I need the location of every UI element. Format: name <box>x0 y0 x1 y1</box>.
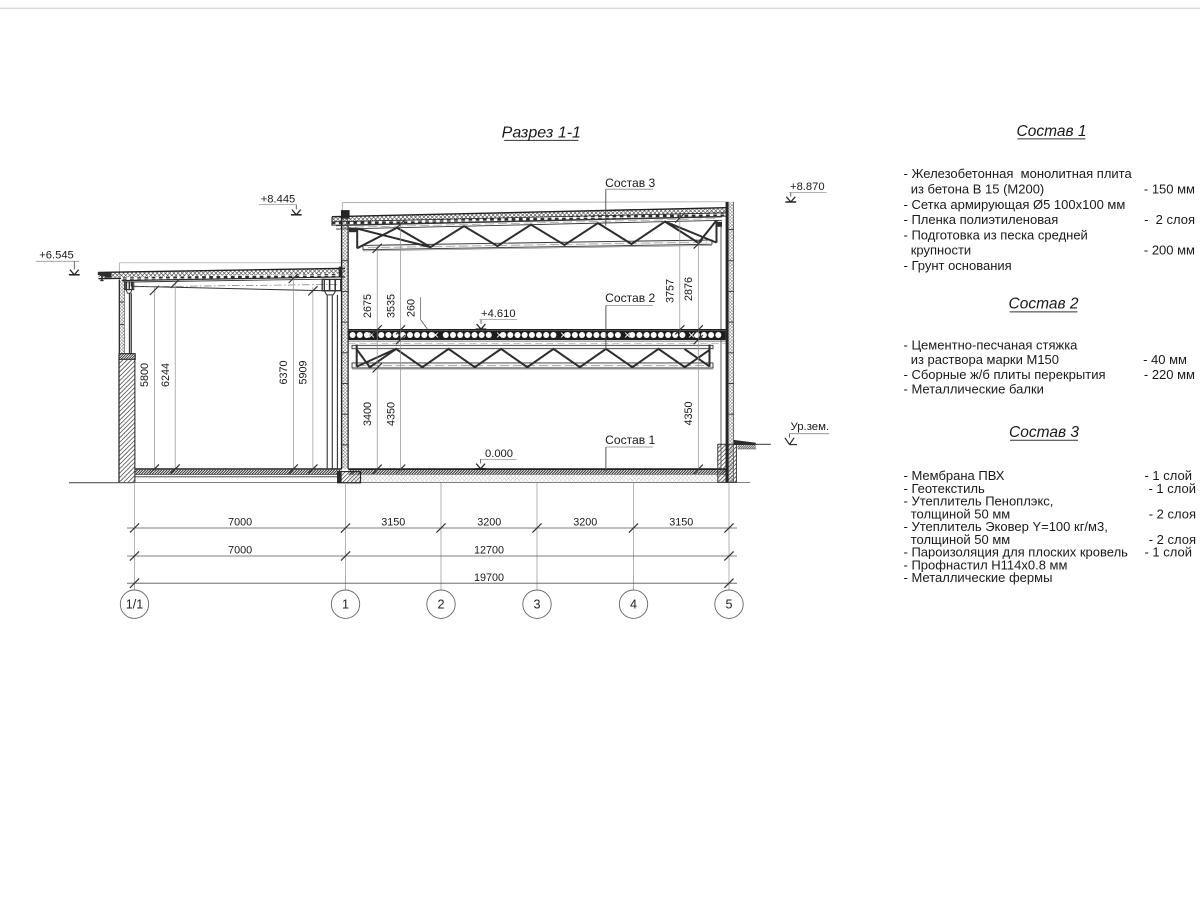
svg-text:4: 4 <box>630 597 637 611</box>
svg-text:3: 3 <box>533 597 540 611</box>
svg-text:6244: 6244 <box>160 363 172 387</box>
svg-text:6370: 6370 <box>278 360 290 384</box>
svg-text:- 200 мм: - 200 мм <box>1144 243 1195 258</box>
svg-text:- Металлические балки: - Металлические балки <box>904 381 1044 396</box>
svg-text:- 40 мм: - 40 мм <box>1143 352 1187 367</box>
svg-text:Состав 3: Состав 3 <box>605 176 655 190</box>
svg-text:260: 260 <box>405 299 417 317</box>
svg-text:3535: 3535 <box>385 294 397 318</box>
svg-text:4350: 4350 <box>385 402 397 426</box>
svg-text:5800: 5800 <box>139 363 151 387</box>
svg-text:+8.445: +8.445 <box>261 194 296 206</box>
svg-text:19700: 19700 <box>474 572 504 584</box>
svg-text:7000: 7000 <box>228 517 252 529</box>
svg-text:Состав 3: Состав 3 <box>1009 424 1079 441</box>
svg-text:из раствора марки М150: из раствора марки М150 <box>904 352 1060 367</box>
svg-text:- 150 мм: - 150 мм <box>1144 182 1195 197</box>
svg-text:- Цементно-песчаная стяжка: - Цементно-песчаная стяжка <box>904 338 1079 353</box>
svg-text:1/1: 1/1 <box>126 597 144 611</box>
svg-text:3757: 3757 <box>665 279 677 303</box>
svg-text:3150: 3150 <box>669 517 693 529</box>
svg-text:- 2 слоя: - 2 слоя <box>1144 212 1195 227</box>
svg-text:3150: 3150 <box>381 517 405 529</box>
svg-text:2675: 2675 <box>362 294 374 318</box>
svg-text:- 1 слой: - 1 слой <box>1144 545 1192 560</box>
svg-text:7000: 7000 <box>228 545 252 557</box>
svg-text:2: 2 <box>437 597 444 611</box>
svg-text:0.000: 0.000 <box>485 448 513 460</box>
svg-text:+8.870: +8.870 <box>790 181 825 193</box>
svg-text:12700: 12700 <box>474 545 504 557</box>
svg-text:3200: 3200 <box>573 517 597 529</box>
svg-text:- Грунт основания: - Грунт основания <box>904 258 1012 273</box>
svg-text:1: 1 <box>342 597 349 611</box>
svg-text:- 2 слоя: - 2 слоя <box>1149 506 1196 521</box>
svg-text:3200: 3200 <box>477 517 501 529</box>
svg-text:Ур.зем.: Ур.зем. <box>790 421 829 433</box>
svg-text:- Сборные ж/б плиты перекрытия: - Сборные ж/б плиты перекрытия <box>904 367 1106 382</box>
svg-text:- Пленка полиэтиленовая: - Пленка полиэтиленовая <box>904 212 1059 227</box>
svg-text:Разрез 1-1: Разрез 1-1 <box>502 125 581 142</box>
svg-text:Состав 1: Состав 1 <box>605 433 655 447</box>
svg-text:+6.545: +6.545 <box>39 249 74 261</box>
svg-text:4350: 4350 <box>683 401 695 425</box>
svg-text:+4.610: +4.610 <box>481 308 516 320</box>
svg-text:- Подготовка из песка средней: - Подготовка из песка средней <box>904 227 1088 242</box>
svg-text:5909: 5909 <box>298 360 310 384</box>
svg-text:- Металлические фермы: - Металлические фермы <box>904 570 1053 585</box>
svg-text:- Железобетонная монолитная п: - Железобетонная монолитная плита <box>904 166 1133 181</box>
svg-text:2876: 2876 <box>683 277 695 301</box>
svg-text:крупности: крупности <box>904 243 972 258</box>
svg-text:из бетона В 15 (М200): из бетона В 15 (М200) <box>904 182 1045 197</box>
svg-text:Состав 2: Состав 2 <box>1009 296 1079 313</box>
svg-text:Состав 2: Состав 2 <box>605 291 655 305</box>
svg-text:- 1 слой: - 1 слой <box>1148 481 1196 496</box>
svg-text:Состав 1: Состав 1 <box>1017 123 1087 140</box>
svg-text:3400: 3400 <box>362 402 374 426</box>
svg-text:- Сетка армирующая Ø5 100х100: - Сетка армирующая Ø5 100х100 мм <box>904 197 1126 212</box>
svg-text:5: 5 <box>725 597 732 611</box>
svg-text:- 220 мм: - 220 мм <box>1144 367 1195 382</box>
